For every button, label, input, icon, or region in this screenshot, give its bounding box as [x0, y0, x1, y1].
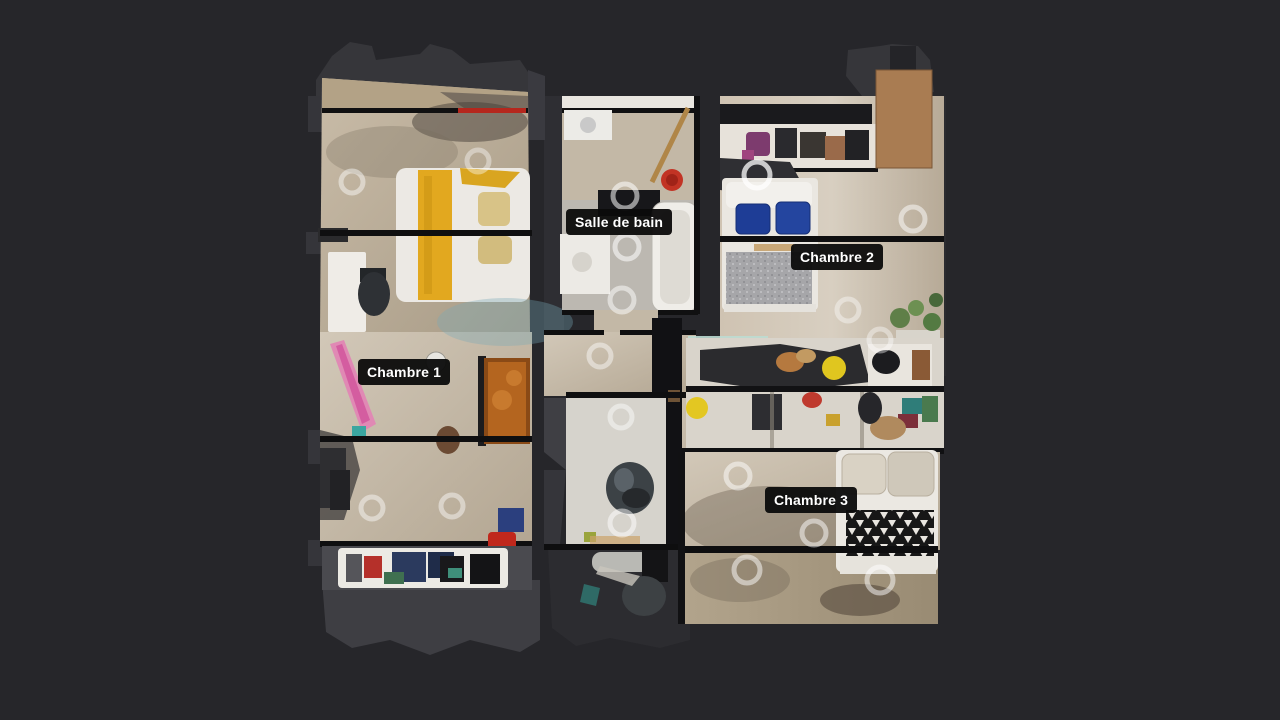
- dollhouse-viewer: Salle de bain Chambre 1 Chambre 2 Chambr…: [0, 0, 1280, 720]
- wardrobe-clutter-band: [682, 338, 944, 454]
- wardrobe-wood: [876, 70, 932, 168]
- wall-line: [720, 236, 944, 242]
- sink: [560, 234, 610, 294]
- pillow: [888, 452, 934, 496]
- room-chambre-1-lower: [320, 298, 573, 590]
- clothes-shelf: [322, 546, 532, 590]
- wall-line: [682, 546, 938, 553]
- storage-box-blue: [498, 508, 524, 532]
- room-chambre-3: [678, 450, 940, 624]
- pillow-blue: [736, 204, 770, 234]
- yellow-item: [822, 356, 846, 380]
- room-label-chambre-1[interactable]: Chambre 1: [358, 359, 450, 385]
- cabinet-orange: [478, 356, 530, 446]
- red-wall-line: [458, 108, 526, 113]
- pillow: [478, 192, 510, 226]
- yellow-item: [686, 397, 708, 419]
- floorplan-3d-render: [0, 0, 1280, 720]
- wall-line: [320, 230, 532, 236]
- desk-chair: [358, 272, 390, 316]
- wall-line: [320, 436, 532, 442]
- office-chair: [606, 462, 654, 514]
- wall-vertical: [678, 452, 685, 624]
- pillow: [478, 236, 512, 264]
- room-label-chambre-2[interactable]: Chambre 2: [791, 244, 883, 270]
- wall-line: [686, 386, 944, 392]
- room-label-salle-de-bain[interactable]: Salle de bain: [566, 209, 672, 235]
- room-label-chambre-3[interactable]: Chambre 3: [765, 487, 857, 513]
- pillow-blue: [776, 202, 810, 234]
- room-chambre-1-upper: [318, 78, 532, 332]
- room-chambre-2: [688, 70, 944, 376]
